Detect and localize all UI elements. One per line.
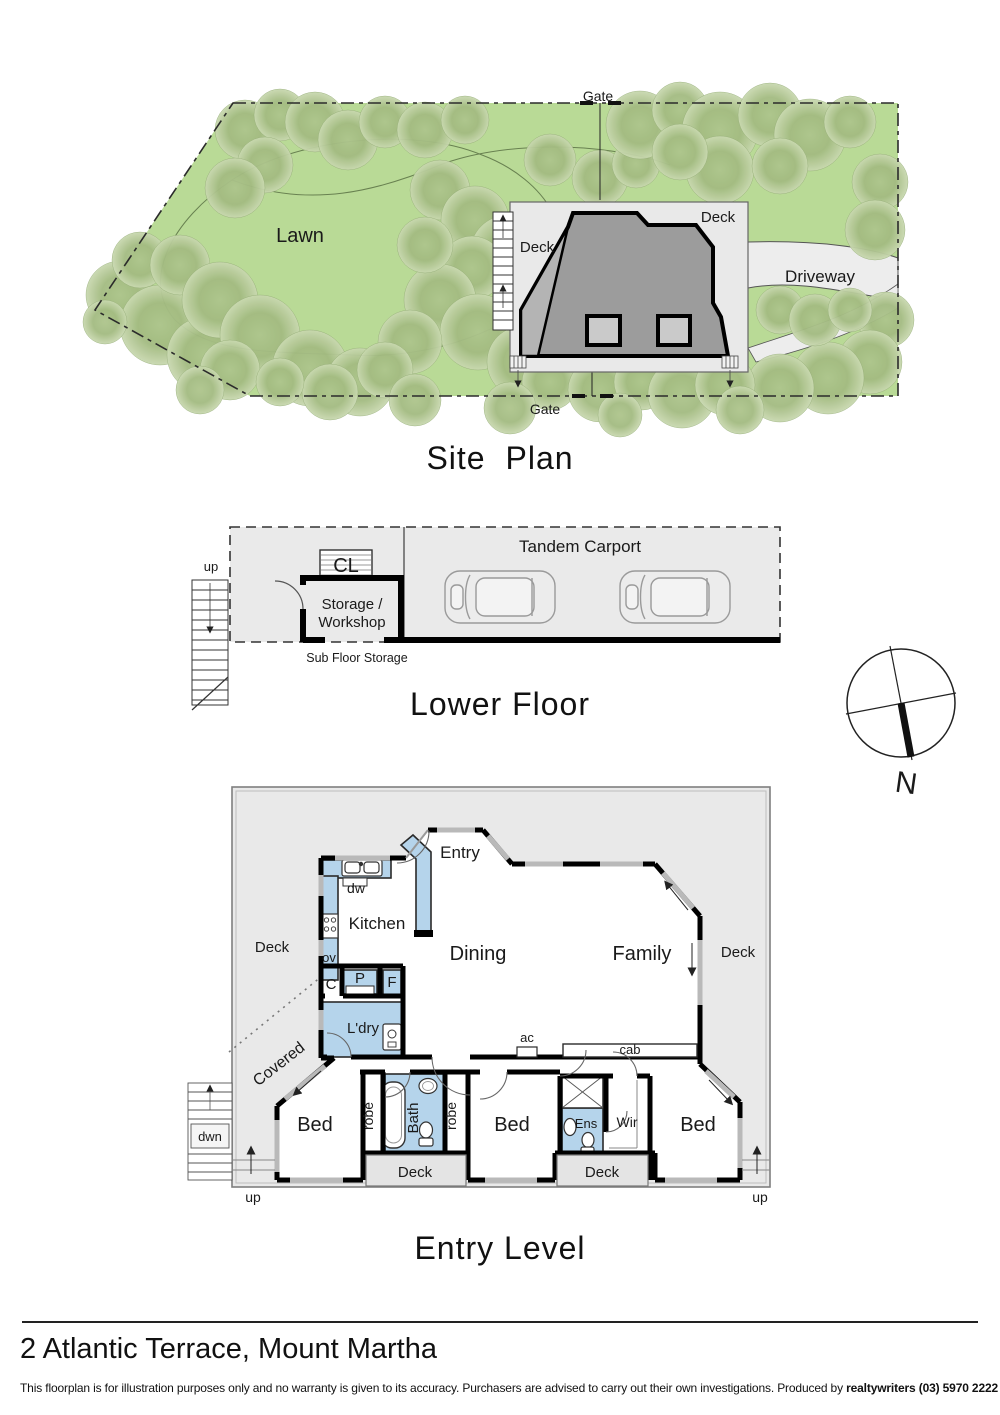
compass-north-needle [901,703,911,757]
label-ens: Ens [575,1116,598,1131]
label-bed3: Bed [680,1114,716,1136]
laundry-trough [383,1024,401,1050]
compass-north-label: N [893,766,919,802]
label-family: Family [613,943,672,965]
label-carport: Tandem Carport [519,537,641,556]
kitchen-counter-end-cap [414,930,433,937]
label-subfloor: Sub Floor Storage [306,651,407,665]
entry-level-drawing: Entry dw Kitchen ov C P F L'dry Deck Cov… [185,780,785,1212]
label-storage-1: Storage / [322,596,384,613]
label-site-deck-right: Deck [701,209,736,226]
site-stairs [493,212,513,330]
compass: N [838,633,973,808]
label-dining: Dining [450,943,507,965]
cooktop [322,914,338,938]
label-site-deck-left: Deck [520,239,555,256]
label-p: P [355,970,365,987]
label-gate-bottom: Gate [530,401,561,417]
label-lower-up: up [204,559,218,574]
label-ov: ov [322,950,336,965]
kitchen-sink [342,860,382,876]
label-ac: ac [520,1030,534,1045]
site-plan-title: Site Plan [0,440,1000,477]
label-wir: Wir [617,1114,638,1130]
bath-basin [419,1079,437,1094]
label-bed2: Bed [494,1114,530,1136]
label-driveway: Driveway [785,267,855,286]
footer-disclaimer: This floorplan is for illustration purpo… [20,1381,998,1395]
label-robe1: robe [360,1102,376,1130]
label-gate-top: Gate [583,88,614,104]
footer-divider [22,1321,978,1323]
label-lawn: Lawn [276,225,324,247]
label-deck-right: Deck [721,944,756,961]
label-up-right: up [752,1189,768,1205]
disclaimer-text: This floorplan is for illustration purpo… [20,1381,846,1395]
label-bed1: Bed [297,1114,333,1136]
label-deck-small1: Deck [398,1164,433,1181]
label-storage-2: Workshop [318,614,385,631]
car-2 [620,571,730,623]
label-f: F [387,974,396,991]
property-address: 2 Atlantic Terrace, Mount Martha [20,1333,437,1366]
floorplan-sheet: Gate Gate Lawn Deck Deck Driveway Site P… [0,0,1000,1415]
car-1 [445,571,555,623]
site-plan-drawing: Gate Gate Lawn Deck Deck Driveway [80,70,920,440]
label-c: C [326,976,337,993]
label-dwn: dwn [198,1129,222,1144]
produced-by: realtywriters (03) 5970 2222 [846,1381,998,1395]
label-ldry: L'dry [347,1020,380,1037]
label-robe2: robe [443,1102,459,1130]
entry-level-title: Entry Level [0,1230,1000,1267]
label-cl: CL [333,555,359,577]
label-deck-small2: Deck [585,1164,620,1181]
ac-unit [517,1047,537,1057]
label-bath: Bath [405,1103,422,1134]
label-kitchen: Kitchen [349,914,406,933]
label-up-left: up [245,1189,261,1205]
label-entry: Entry [440,843,480,862]
ensuite-shower [562,1076,603,1108]
label-cab: cab [620,1042,641,1057]
pantry-shelf [346,986,374,994]
label-deck-left: Deck [255,939,290,956]
label-dw: dw [347,880,366,896]
